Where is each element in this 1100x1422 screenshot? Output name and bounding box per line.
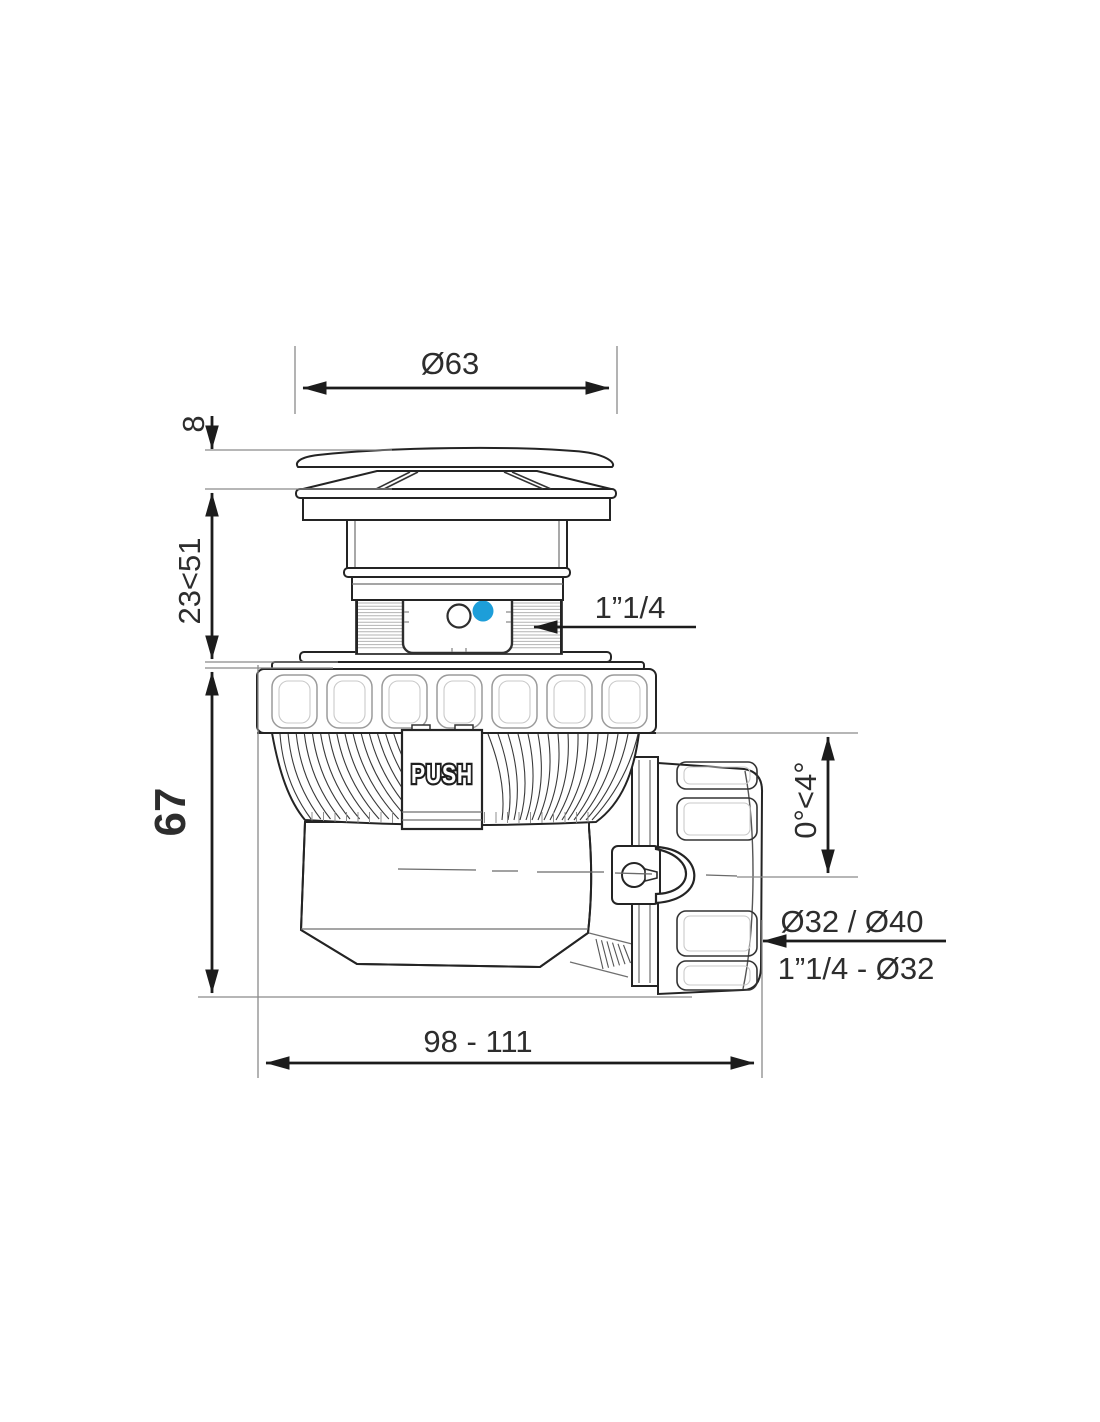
dim-cap-diameter: Ø63 bbox=[295, 346, 617, 414]
blue-indicator-dot bbox=[473, 601, 494, 622]
dim-outlet-diameters-label: Ø32 / Ø40 bbox=[780, 904, 923, 939]
dim-tilt-angle-label: 0°<4° bbox=[788, 761, 823, 838]
product-technical-drawing: PUSH Ø63 8 bbox=[0, 0, 1100, 1422]
dim-outlet-callout: Ø32 / Ø40 1”1/4 - Ø32 bbox=[763, 904, 946, 986]
cap-skirt bbox=[303, 471, 611, 489]
plug-stem bbox=[344, 520, 570, 600]
keyhole-icon bbox=[622, 863, 646, 887]
indicator-circle-outline bbox=[448, 605, 471, 628]
trap-body bbox=[301, 822, 632, 977]
dim-cap-diameter-label: Ø63 bbox=[421, 346, 480, 381]
dim-inlet-thread-label: 1”1/4 bbox=[595, 590, 666, 625]
outlet-nut bbox=[658, 762, 762, 994]
cap-flange bbox=[296, 489, 616, 520]
dim-adjust-range-label: 23<51 bbox=[172, 537, 207, 624]
dim-cap-thickness-label: 8 bbox=[176, 415, 211, 432]
dim-outlet-thread-label: 1”1/4 - Ø32 bbox=[778, 951, 935, 986]
cap-dome bbox=[297, 448, 613, 467]
castellated-ring-nut bbox=[257, 669, 656, 733]
push-tab: PUSH bbox=[402, 725, 482, 829]
outlet-thread-hatch bbox=[596, 939, 631, 969]
dim-cap-thickness: 8 bbox=[176, 415, 392, 450]
dim-overall-length-label: 98 - 111 bbox=[423, 1024, 532, 1059]
push-label: PUSH bbox=[411, 759, 473, 789]
keyhole-bracket bbox=[612, 846, 660, 904]
dim-body-height-label: 67 bbox=[146, 788, 195, 837]
technical-drawing-canvas: PUSH Ø63 8 bbox=[0, 0, 1100, 1422]
